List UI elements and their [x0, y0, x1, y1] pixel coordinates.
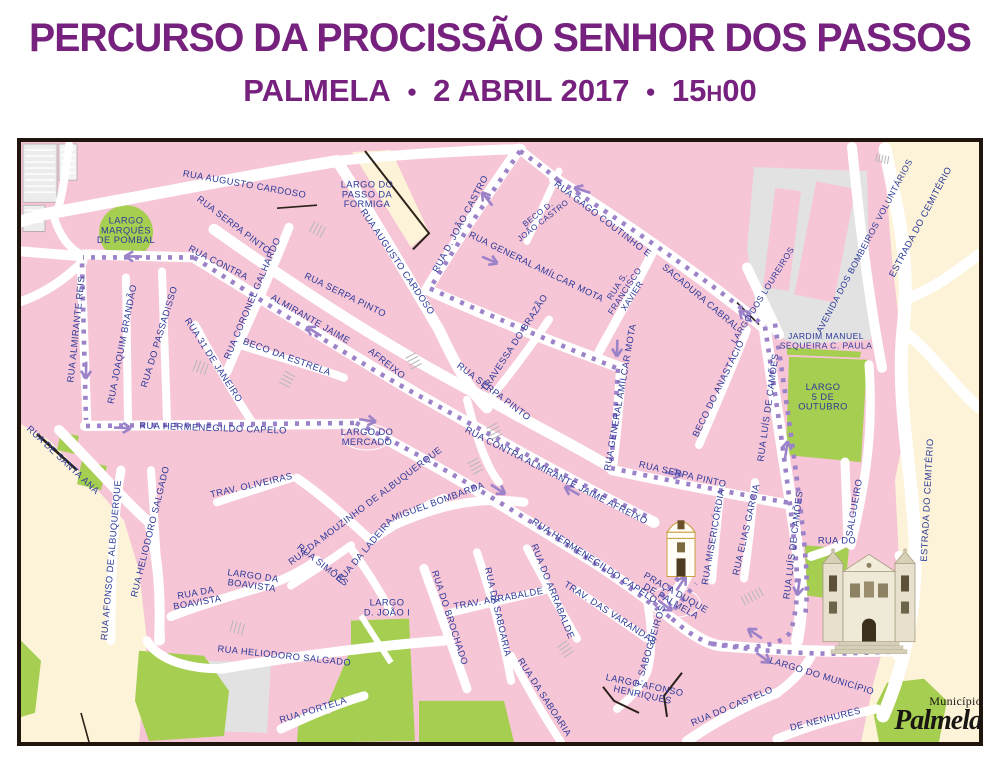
page-title: PERCURSO DA PROCISSÃO SENHOR DOS PASSOS: [10, 0, 990, 61]
subtitle-time: 15H00: [672, 73, 757, 108]
bullet-icon: ●: [407, 82, 417, 101]
bullet-icon: ●: [646, 82, 656, 101]
procession-map: RUA AUGUSTO CARDOSOLARGO DOPASSO DAFORMI…: [17, 138, 983, 746]
street-label: JARDIM MANUELSEQUEIRA C. PAULA: [780, 331, 873, 350]
subtitle-date: 2 ABRIL 2017: [433, 73, 629, 108]
church-sao-pedro-icon: [823, 548, 915, 653]
header: PERCURSO DA PROCISSÃO SENHOR DOS PASSOS …: [0, 0, 1000, 109]
map-canvas: RUA AUGUSTO CARDOSOLARGO DOPASSO DAFORMI…: [21, 142, 979, 742]
street-label: LARGOD. JOÃO I: [364, 598, 410, 618]
street-label: LARGO DOPASSO DAFORMIGA: [341, 179, 394, 209]
subtitle: PALMELA●2 ABRIL 2017●15H00: [0, 73, 1000, 109]
street-label: LARGO DOMERCADO: [341, 427, 394, 447]
church-misericordia-icon: [667, 520, 695, 576]
street-label: RUA DO: [818, 535, 856, 545]
municipio-palmela-logo: Município Palmela: [882, 694, 982, 733]
logo-line2: Palmela: [882, 709, 982, 733]
subtitle-city: PALMELA: [243, 73, 391, 108]
